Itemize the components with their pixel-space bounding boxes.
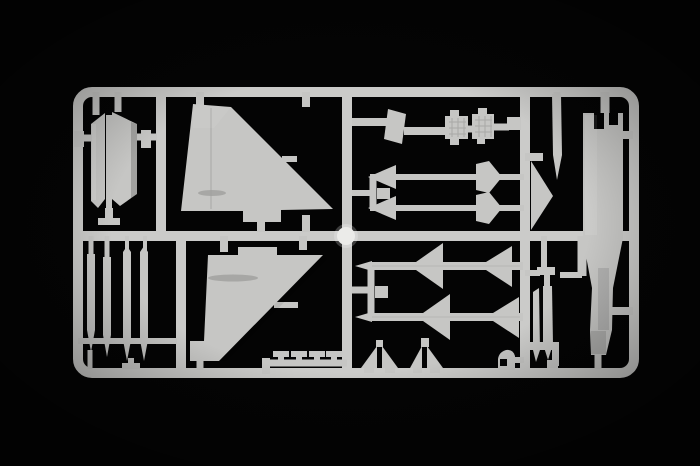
sprue-gate <box>334 224 358 248</box>
sprue-photo <box>0 0 700 466</box>
attachment-block <box>375 286 388 298</box>
photo-stage <box>0 0 700 466</box>
attachment-block <box>377 188 390 199</box>
attachment-block <box>74 131 84 147</box>
attachment-block <box>141 130 151 148</box>
fin-antenna-tab <box>282 156 297 162</box>
